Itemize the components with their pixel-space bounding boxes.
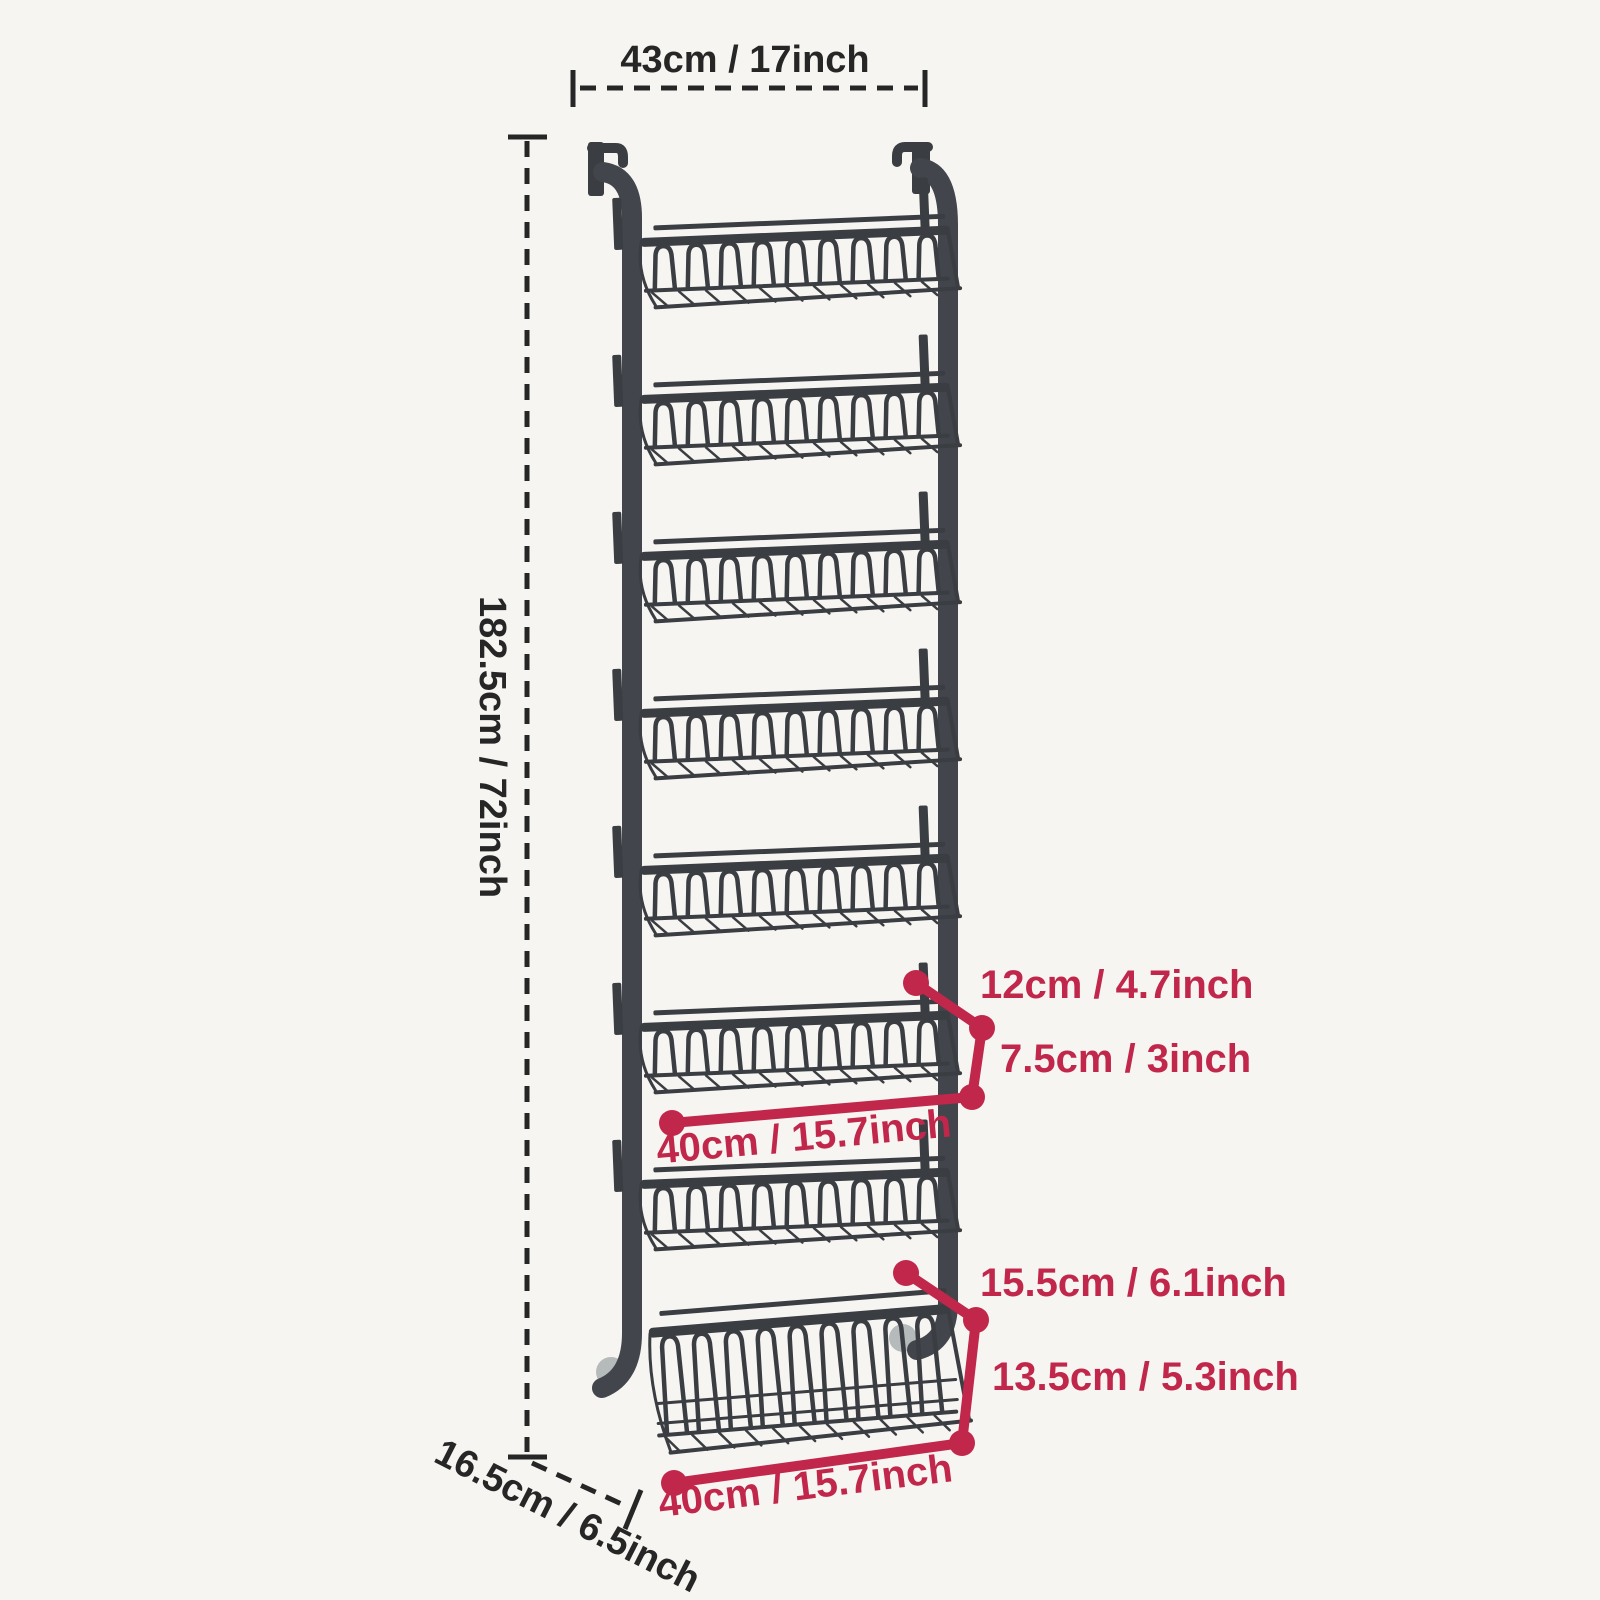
tier-depth-label: 12cm / 4.7inch	[980, 963, 1253, 1007]
measure-dot	[969, 1015, 995, 1041]
rack-illustration	[588, 142, 972, 1454]
width-label: 43cm / 17inch	[620, 39, 869, 81]
diagram-canvas: 43cm / 17inch 182.5cm / 72inch 16.5cm / …	[0, 0, 1600, 1600]
tier-height-label: 7.5cm / 3inch	[1000, 1037, 1251, 1081]
basket-tier-4	[612, 647, 960, 780]
bottom-height-label: 13.5cm / 5.3inch	[992, 1355, 1299, 1399]
basket-tier-3	[612, 490, 960, 623]
width-dimension: 43cm / 17inch	[573, 39, 925, 107]
basket-tier-5	[612, 804, 960, 937]
measure-dot	[893, 1260, 919, 1286]
basket-tier-8-deep	[646, 1287, 971, 1454]
rail-left	[602, 172, 632, 1388]
measure-dot	[903, 970, 929, 996]
measure-dot	[959, 1084, 985, 1110]
product-dimension-diagram: 43cm / 17inch 182.5cm / 72inch 16.5cm / …	[0, 0, 1600, 1600]
bottom-width-label: 40cm / 15.7inch	[656, 1446, 955, 1526]
measure-dot	[963, 1307, 989, 1333]
height-label: 182.5cm / 72inch	[471, 596, 513, 898]
bottom-depth-label: 15.5cm / 6.1inch	[980, 1261, 1287, 1305]
basket-tier-2	[612, 333, 960, 466]
bottom-basket-annotations: 15.5cm / 6.1inch 13.5cm / 5.3inch 40cm /…	[656, 1260, 1299, 1526]
measure-dot	[949, 1430, 975, 1456]
basket-tier-1	[612, 176, 960, 309]
height-dimension: 182.5cm / 72inch	[471, 137, 547, 1457]
